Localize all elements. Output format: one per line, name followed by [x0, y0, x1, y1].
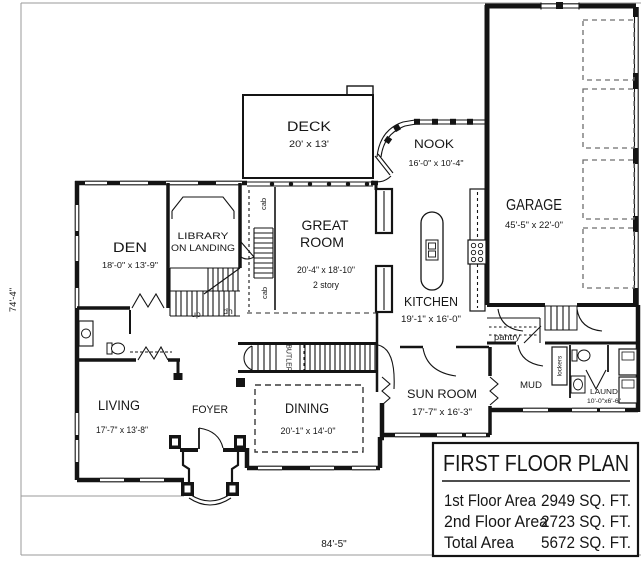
library-label-2: ON LANDING: [171, 243, 235, 254]
great-room-label-2: ROOM: [300, 234, 344, 250]
garage-steps: [545, 306, 577, 330]
stair-curve-start: [244, 346, 252, 370]
butler-treads: [300, 345, 375, 371]
room-deck: DECK 20' x 13': [243, 86, 373, 178]
area-row-value: 2949 SQ. FT.: [541, 492, 631, 510]
under-stair-door: [241, 242, 254, 257]
cab-shelves: [254, 228, 273, 278]
living-size: 17'-7" x 13'-8": [96, 425, 148, 435]
deck-door: [375, 154, 393, 175]
area-row-value: 2723 SQ. FT.: [541, 513, 631, 531]
room-den: DEN 18'-0" x 13'-9": [77, 183, 168, 308]
room-sun-room: SUN ROOM 17'-7" x 16'-3": [382, 347, 498, 435]
width-dimension: 84'-5": [321, 539, 347, 550]
room-garage: GARAGE 45'-5" x 22'-0": [485, 2, 639, 305]
room-library-stairs: LIBRARY ON LANDING up dn cab cab: [170, 183, 275, 319]
deck-outline: [243, 95, 373, 178]
stairs-up-label: up: [191, 309, 201, 319]
stair-flare: [378, 345, 394, 389]
garage-label: GARAGE: [506, 197, 562, 214]
toilet-tank-icon: [572, 350, 577, 361]
porch-step-arc: [189, 495, 231, 505]
hall-bath: [77, 310, 183, 380]
pantry-door: [524, 326, 541, 343]
toilet-icon: [578, 350, 590, 361]
living-label: LIVING: [98, 398, 140, 413]
foyer-label: FOYER: [192, 404, 228, 416]
garage-size: 45'-5" x 22'-0": [505, 220, 563, 230]
nook-size: 16'-0" x 10'-4": [409, 158, 464, 168]
library-label-1: LIBRARY: [178, 231, 230, 242]
kitchen-label: KITCHEN: [404, 295, 458, 309]
sun-room-door-arc: [423, 348, 456, 376]
pantry-label: pantry: [494, 333, 520, 342]
den-size: 18'-0" x 13'-9": [102, 260, 158, 270]
floorplan-sheet: DECK 20' x 13' GARAGE 45'-5" x 22'-0": [0, 0, 641, 561]
deck-size: 20' x 13': [289, 139, 329, 149]
room-dining: DINING 20'-1" x 14'-0": [255, 385, 363, 452]
dining-label: DINING: [285, 401, 329, 416]
laundry-label: LAUND: [590, 387, 619, 396]
floor-plan-drawing: DECK 20' x 13' GARAGE 45'-5" x 22'-0": [0, 0, 641, 561]
foyer-entry: FOYER: [169, 404, 247, 505]
great-room-label-1: GREAT: [302, 217, 349, 233]
stairs-break-line: [204, 268, 240, 294]
cab-label-upper: cab: [259, 198, 268, 210]
room-kitchen: KITCHEN 19'-1" x 16'-0": [377, 189, 486, 343]
garage-bays: [583, 20, 634, 288]
den-bifold-door: [132, 294, 164, 308]
range-icon: [468, 240, 486, 264]
kitchen-size: 19'-1" x 16'-0": [401, 314, 461, 324]
den-label: DEN: [113, 239, 147, 255]
toilet-icon: [112, 343, 125, 354]
closet-bifold-door: [138, 347, 168, 360]
room-living: LIVING 17'-7" x 13'-8": [96, 398, 148, 435]
sun-mud-bifold: [490, 377, 498, 405]
nook-label: NOOK: [414, 137, 454, 151]
great-room-size: 20'-4" x 18'-10": [297, 265, 355, 275]
height-dimension: 74'-4": [8, 288, 19, 312]
library-niche: [172, 197, 234, 219]
dining-tray-ceiling: [255, 385, 363, 452]
dining-size: 20'-1" x 14'-0": [281, 426, 336, 436]
deck-step: [347, 86, 373, 95]
front-door-arc: [199, 428, 223, 448]
room-nook: NOOK 16'-0" x 10'-4": [372, 119, 485, 182]
sun-room-west-bifold: [382, 377, 390, 405]
sun-room-size: 17'-7" x 16'-3": [412, 407, 472, 417]
area-row-label: 2nd Floor Area: [444, 513, 549, 531]
plan-title: FIRST FLOOR PLAN: [443, 450, 629, 476]
butler-label: BUTLER: [285, 344, 292, 372]
area-row-label: 1st Floor Area: [444, 492, 537, 510]
deck-label: DECK: [287, 119, 331, 134]
overall-dimensions: 74'-4" 84'-5": [8, 288, 347, 550]
great-room-note: 2 story: [313, 280, 339, 290]
sun-room-label: SUN ROOM: [407, 387, 477, 401]
cab-label-lower: cab: [260, 287, 269, 299]
area-row-label: Total Area: [444, 534, 515, 552]
garage-window-mullion: [556, 2, 563, 9]
mud-door-arc: [518, 345, 543, 366]
laundry-size: 10'-0"x6'-6": [587, 398, 622, 405]
porch-cheek-walls: [183, 452, 238, 482]
stairs-dn-label: dn: [223, 306, 233, 316]
mud-laundry: pantry lockers MUD LAUND 10'-0"x6'-6": [487, 305, 638, 405]
mud-label: MUD: [520, 380, 543, 390]
area-row-value: 5672 SQ. FT.: [541, 534, 631, 552]
lockers-label: lockers: [557, 355, 564, 376]
title-block: FIRST FLOOR PLAN 1st Floor Area 2949 SQ.…: [433, 443, 638, 556]
